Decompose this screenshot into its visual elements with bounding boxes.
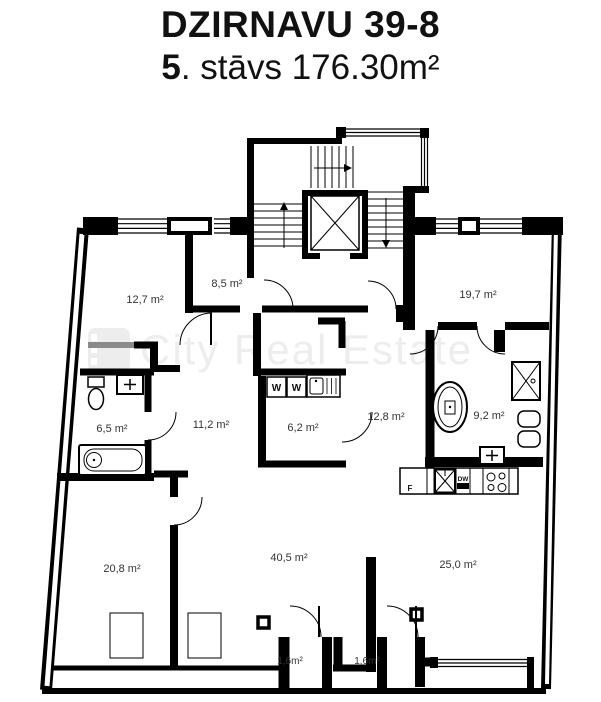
column xyxy=(258,617,269,628)
door-balcony-1 xyxy=(290,606,321,637)
label-bathroom-9-2: 9,2 m² xyxy=(473,410,505,422)
label-dishwasher: DW xyxy=(458,476,470,483)
label-fridge: F xyxy=(408,484,413,493)
label-kitchen-25-0: 25,0 m² xyxy=(439,559,477,571)
window-caps xyxy=(430,657,534,691)
elevator xyxy=(302,190,368,259)
label-room-19-7: 19,7 m² xyxy=(459,289,497,301)
stove-hob-icon xyxy=(487,473,495,481)
subtitle-rest: . stāvs 176.30m² xyxy=(181,48,440,87)
page-title: DZIRNAVU 39-8 xyxy=(0,4,601,46)
logo-dot xyxy=(91,358,97,365)
watermark: City Real Estate xyxy=(88,326,473,373)
door-entrance-right xyxy=(368,281,396,309)
header: DZIRNAVU 39-8 5. stāvs 176.30m² xyxy=(0,0,601,88)
floorplan-page: DZIRNAVU 39-8 5. stāvs 176.30m² City Rea… xyxy=(0,0,601,702)
toilet-icon xyxy=(88,377,104,387)
dishwasher-badge xyxy=(457,483,469,489)
label-laundry-6-2: 6,2 m² xyxy=(287,422,319,434)
label-washer-1: W xyxy=(272,383,282,394)
label-corridor-12-8: 12,8 m² xyxy=(367,411,405,423)
furniture-square xyxy=(188,613,221,658)
label-bathroom-6-5: 6,5 m² xyxy=(96,423,128,435)
toilet-bowl-icon xyxy=(89,389,104,410)
label-washer-2: W xyxy=(292,383,302,394)
label-balcony-2: 1,6m² xyxy=(354,656,380,667)
label-room-20-8: 20,8 m² xyxy=(103,563,141,575)
page-subtitle: 5. stāvs 176.30m² xyxy=(0,48,601,88)
door-bathroom-6-5 xyxy=(148,412,176,440)
door-entrance-left xyxy=(264,280,293,309)
floor-number: 5 xyxy=(161,48,180,87)
watermark-text: City Real Estate xyxy=(140,326,473,373)
label-hall-11-2: 11,2 m² xyxy=(193,419,230,431)
label-balcony-1: 1,6m² xyxy=(277,656,303,667)
label-room-12-7: 12,7 m² xyxy=(126,294,164,306)
logo-dot xyxy=(91,334,97,341)
door-room-20-8 xyxy=(174,497,202,525)
label-hall-8-5: 8,5 m² xyxy=(211,278,243,290)
radiator-icon xyxy=(518,431,540,447)
floorplan-drawing: City Real Estate xyxy=(0,0,601,702)
label-living-40-5: 40,5 m² xyxy=(270,552,308,564)
radiator-icon xyxy=(518,411,540,427)
furniture-square xyxy=(110,613,143,658)
